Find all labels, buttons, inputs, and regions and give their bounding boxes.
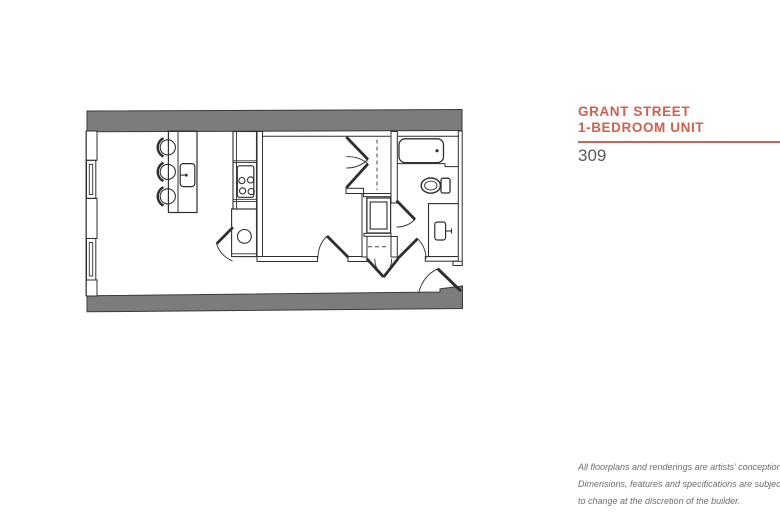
wall-pier [86,280,97,296]
wall-pier [86,198,97,238]
bathroom [398,139,459,261]
left-wall-windows [86,131,97,296]
bathroom-south-wall [425,257,458,262]
toilet-icon [421,178,450,193]
window-icon [86,160,96,198]
bar-stool-icon [158,187,176,205]
bottom-wall [87,286,463,312]
hall-walls [362,132,397,258]
plan-title-line1: GRANT STREET [578,104,780,120]
bathtub-icon [399,139,444,163]
closet-jamb-wall [346,188,364,193]
disclaimer-line: All floorplans and renderings are artist… [578,459,778,476]
disclaimer-line: to change at the discretion of the build… [578,493,778,510]
kitchen-swing-door-icon [217,227,233,261]
top-wall [87,110,462,132]
window-icon [86,239,96,281]
right-wall [453,131,462,266]
bedroom-walls [257,132,367,262]
washer-dryer-door-icon [397,201,416,228]
plan-title-line2: 1-BEDROOM UNIT [578,120,780,136]
plan-title: GRANT STREET 1-BEDROOM UNIT [578,104,780,136]
bar-stools [158,138,176,205]
title-underline [578,141,780,143]
unit-number: 309 [578,146,606,166]
vanity-sink-icon [429,204,459,257]
kitchen-sink-icon [238,230,252,244]
washer-dryer-closet [367,198,415,233]
bathroom-door-icon [398,239,427,259]
island-sink-icon [180,164,195,187]
kitchen-counter [217,132,257,262]
bedroom-closet [346,137,377,194]
bar-stool-icon [158,138,176,156]
floorplan-drawing [0,0,780,517]
bedroom-door-icon [318,236,349,258]
wall-pier [86,131,97,160]
sink-cabinet [232,209,257,257]
closet-door-leaf [346,137,368,160]
closet-door-leaf [346,164,368,188]
page-canvas: GRANT STREET 1-BEDROOM UNIT 309 All floo… [0,0,780,517]
bar-stool-icon [158,163,176,181]
cooktop-icon [237,166,254,198]
kitchen-island [168,131,197,212]
disclaimer-line: Dimensions, features and specifications … [578,476,778,493]
disclaimer: All floorplans and renderings are artist… [578,459,778,509]
